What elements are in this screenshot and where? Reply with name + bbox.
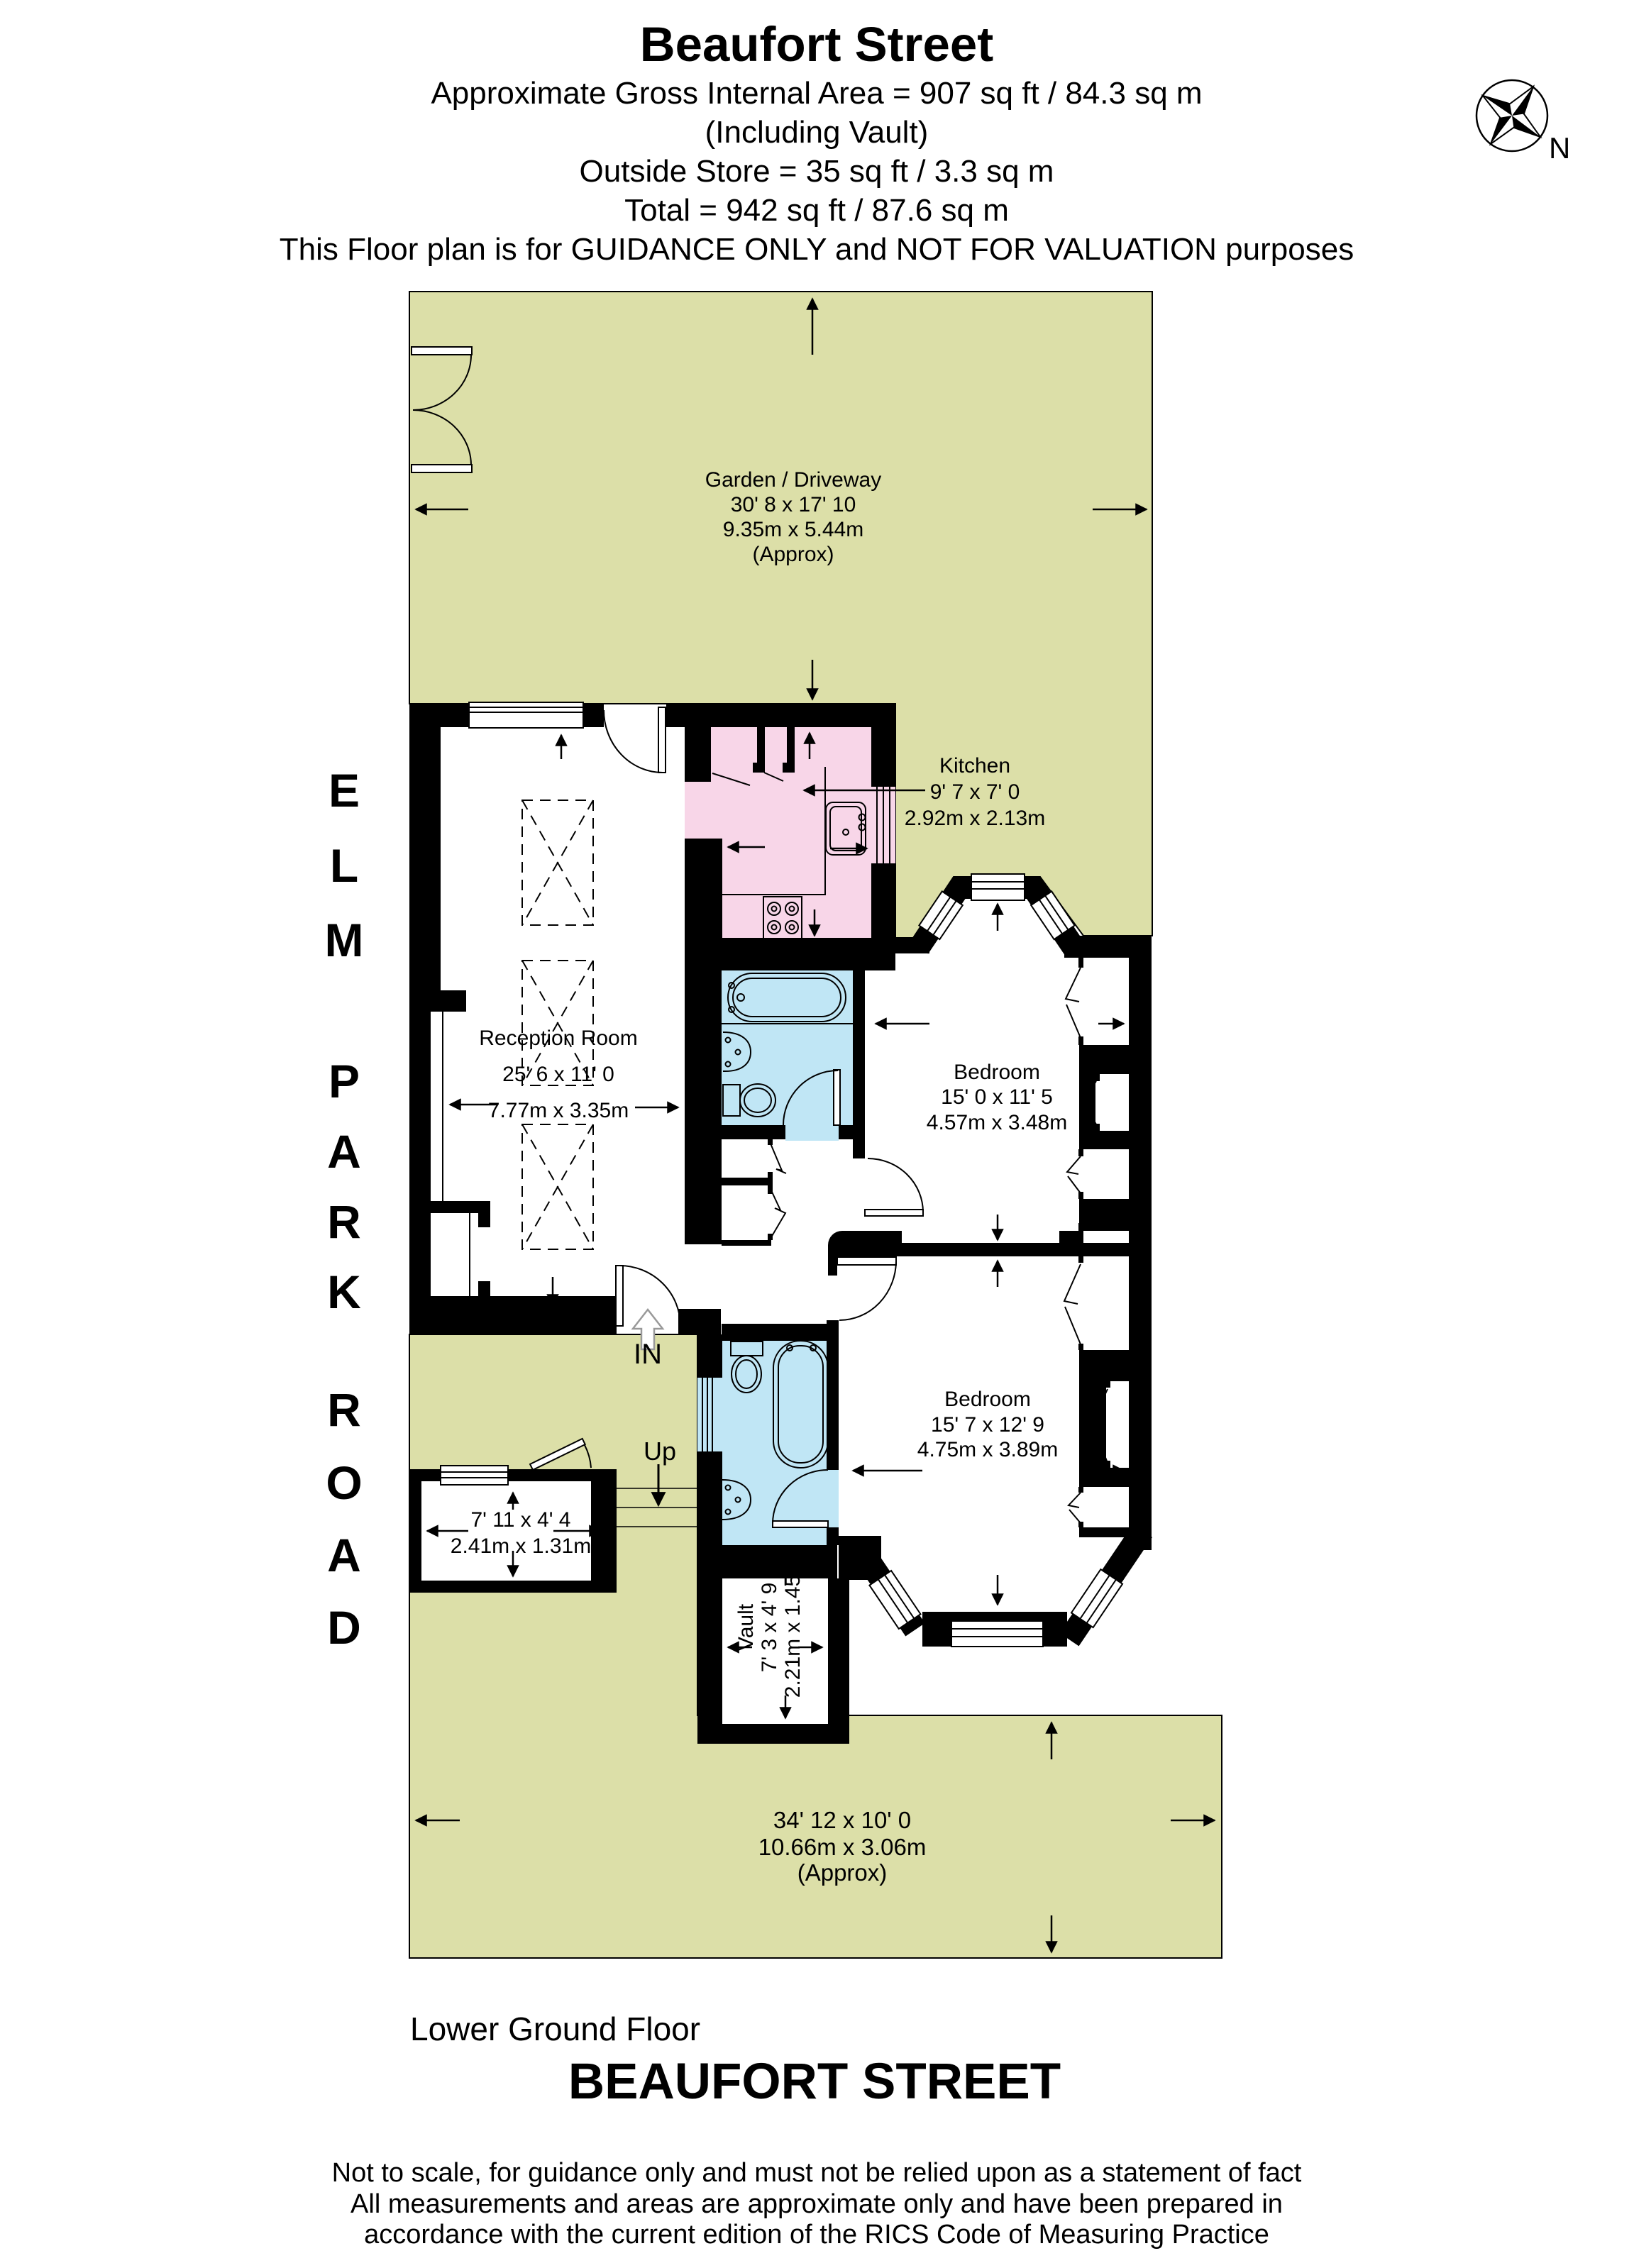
svg-text:D: D xyxy=(327,1601,361,1654)
svg-text:7' 11 x 4' 4: 7' 11 x 4' 4 xyxy=(471,1508,571,1532)
svg-text:Outside Store = 35 sq ft / 3.3: Outside Store = 35 sq ft / 3.3 sq m xyxy=(580,154,1054,189)
svg-text:Beaufort Street: Beaufort Street xyxy=(640,17,993,72)
svg-text:(Including Vault): (Including Vault) xyxy=(705,115,929,150)
svg-text:accordance with the current ed: accordance with the current edition of t… xyxy=(364,2220,1269,2250)
svg-text:Vault: Vault xyxy=(734,1603,758,1651)
svg-text:2.41m x 1.31m: 2.41m x 1.31m xyxy=(451,1534,591,1558)
svg-text:7' 3 x 4' 9: 7' 3 x 4' 9 xyxy=(758,1583,781,1673)
svg-text:Garden / Driveway: Garden / Driveway xyxy=(705,468,881,492)
svg-text:E: E xyxy=(329,764,360,817)
svg-text:Lower Ground Floor: Lower Ground Floor xyxy=(410,2010,700,2047)
svg-text:O: O xyxy=(326,1456,362,1509)
svg-text:10.66m x 3.06m: 10.66m x 3.06m xyxy=(758,1834,927,1860)
svg-text:25' 6 x 11' 0: 25' 6 x 11' 0 xyxy=(502,1063,614,1086)
svg-text:7.77m x 3.35m: 7.77m x 3.35m xyxy=(488,1099,629,1122)
svg-text:P: P xyxy=(329,1055,360,1107)
svg-text:R: R xyxy=(327,1195,361,1248)
svg-text:Bedroom: Bedroom xyxy=(954,1061,1040,1084)
svg-text:34' 12 x 10' 0: 34' 12 x 10' 0 xyxy=(773,1807,911,1833)
svg-text:This Floor plan is for GUIDANC: This Floor plan is for GUIDANCE ONLY and… xyxy=(280,232,1354,267)
svg-text:Kitchen: Kitchen xyxy=(939,754,1010,778)
svg-text:All measurements and areas are: All measurements and areas are approxima… xyxy=(350,2189,1283,2219)
svg-text:9' 7 x 7' 0: 9' 7 x 7' 0 xyxy=(930,780,1020,804)
svg-text:15' 7 x 12' 9: 15' 7 x 12' 9 xyxy=(931,1413,1044,1437)
svg-text:A: A xyxy=(327,1125,361,1178)
svg-text:2.92m x 2.13m: 2.92m x 2.13m xyxy=(905,807,1045,830)
svg-text:BEAUFORT STREET: BEAUFORT STREET xyxy=(568,2054,1061,2110)
svg-text:Not to scale, for guidance onl: Not to scale, for guidance only and must… xyxy=(332,2158,1302,2188)
svg-text:(Approx): (Approx) xyxy=(797,1859,888,1886)
svg-text:Approximate Gross Internal Are: Approximate Gross Internal Area = 907 sq… xyxy=(431,76,1202,111)
svg-text:2.21m x 1.45m: 2.21m x 1.45m xyxy=(781,1557,805,1698)
svg-text:A: A xyxy=(327,1529,361,1581)
svg-text:K: K xyxy=(327,1266,361,1318)
svg-text:15' 0 x 11' 5: 15' 0 x 11' 5 xyxy=(941,1085,1053,1109)
svg-text:4.75m x 3.89m: 4.75m x 3.89m xyxy=(917,1438,1058,1461)
svg-text:L: L xyxy=(330,839,358,892)
svg-text:Bedroom: Bedroom xyxy=(944,1388,1031,1411)
svg-text:Reception Room: Reception Room xyxy=(479,1027,637,1050)
svg-text:IN: IN xyxy=(634,1339,662,1370)
svg-text:R: R xyxy=(327,1383,361,1436)
svg-text:(Approx): (Approx) xyxy=(752,543,834,566)
svg-text:N: N xyxy=(1549,131,1570,165)
svg-text:Total = 942 sq ft / 87.6 sq m: Total = 942 sq ft / 87.6 sq m xyxy=(624,193,1009,228)
svg-text:30' 8 x 17' 10: 30' 8 x 17' 10 xyxy=(731,493,856,516)
svg-text:4.57m x 3.48m: 4.57m x 3.48m xyxy=(927,1111,1067,1134)
svg-text:Up: Up xyxy=(644,1437,676,1466)
svg-text:M: M xyxy=(325,914,364,966)
svg-text:9.35m x 5.44m: 9.35m x 5.44m xyxy=(723,518,863,541)
